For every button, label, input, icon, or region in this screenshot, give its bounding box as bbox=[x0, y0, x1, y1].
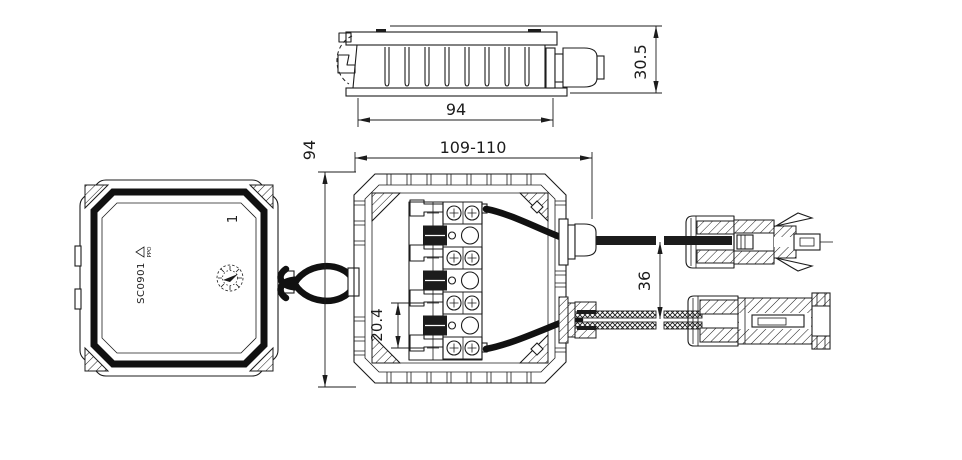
gate-mark bbox=[376, 29, 386, 32]
cable-top bbox=[596, 236, 656, 245]
cavity-number-text: 1 bbox=[226, 215, 241, 223]
part-number-text: SC0901 bbox=[136, 262, 147, 304]
junction-box-technical-drawing: 94 30.5 SC0901 PPO 1 bbox=[0, 0, 962, 460]
dimension-label-front-width: 109-110 bbox=[440, 138, 507, 157]
hinge-tab bbox=[75, 289, 81, 309]
dimension-front-width: 109-110 bbox=[355, 138, 592, 219]
locking-prong bbox=[776, 213, 812, 226]
corner-boss bbox=[372, 193, 400, 221]
cable-gland-top bbox=[559, 219, 596, 265]
contact-tube bbox=[794, 234, 820, 250]
mc4-female-connector bbox=[688, 293, 830, 349]
dimension-terminal-pitch: 20.4 bbox=[368, 303, 424, 348]
dimension-label-cable-spacing: 36 bbox=[635, 271, 654, 291]
open-box-front-view bbox=[354, 174, 732, 383]
lid-tether-wire bbox=[281, 266, 359, 301]
cable-gland-bottom bbox=[559, 297, 656, 343]
dimension-label-side-width: 94 bbox=[446, 100, 466, 119]
material-text: PPO bbox=[147, 246, 153, 258]
hinge-tab bbox=[75, 246, 81, 266]
dimension-label-terminal-pitch: 20.4 bbox=[368, 308, 386, 341]
seal-blocks bbox=[423, 226, 447, 336]
cooling-ribs bbox=[385, 47, 529, 86]
material-mark: PPO bbox=[136, 246, 153, 258]
lid-outline bbox=[80, 180, 278, 376]
base-plate bbox=[346, 88, 567, 96]
side-profile-view bbox=[337, 29, 604, 96]
lid-profile bbox=[346, 32, 557, 45]
locking-prong bbox=[776, 258, 812, 271]
gate-mark bbox=[528, 29, 541, 32]
terminal-block bbox=[409, 200, 487, 360]
diode-rows bbox=[449, 227, 479, 334]
braided-cable bbox=[664, 322, 702, 329]
dimension-label-front-height: 94 bbox=[300, 140, 319, 160]
cable-top bbox=[664, 236, 732, 245]
dimension-cable-spacing: 36 bbox=[635, 242, 660, 319]
date-stamp bbox=[217, 265, 243, 291]
lid-back-view: SC0901 PPO 1 bbox=[75, 180, 278, 376]
braided-cable bbox=[664, 311, 702, 318]
dimension-label-side-height: 30.5 bbox=[631, 44, 650, 80]
dimension-side-width: 94 bbox=[358, 98, 553, 127]
side-cable-gland bbox=[546, 48, 604, 88]
